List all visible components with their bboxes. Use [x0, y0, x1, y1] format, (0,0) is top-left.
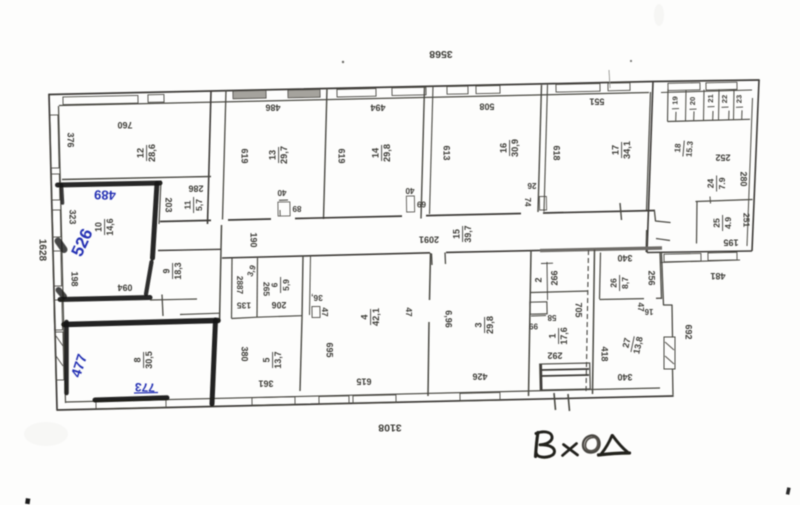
- svg-text:340: 340: [617, 253, 632, 263]
- svg-text:695: 695: [325, 342, 335, 357]
- svg-text:2887: 2887: [235, 276, 244, 295]
- svg-text:135: 135: [237, 301, 252, 311]
- svg-text:11: 11: [182, 200, 192, 209]
- svg-text:340: 340: [617, 372, 632, 382]
- svg-text:23: 23: [735, 95, 744, 103]
- svg-text:47: 47: [320, 307, 330, 317]
- svg-text:1: 1: [547, 333, 557, 338]
- svg-text:692: 692: [684, 324, 694, 339]
- svg-text:47: 47: [636, 302, 645, 312]
- svg-text:190: 190: [249, 232, 259, 247]
- svg-text:9: 9: [161, 268, 171, 273]
- svg-text:26: 26: [608, 278, 618, 288]
- svg-text:494: 494: [370, 103, 385, 113]
- svg-text:380: 380: [240, 346, 250, 361]
- svg-text:426: 426: [472, 372, 487, 382]
- svg-text:15: 15: [451, 229, 461, 239]
- svg-text:10: 10: [93, 222, 103, 232]
- svg-text:280: 280: [739, 171, 749, 186]
- svg-text:5,7: 5,7: [194, 199, 204, 211]
- svg-text:34,1: 34,1: [622, 141, 632, 159]
- svg-text:206: 206: [272, 300, 287, 310]
- svg-text:265: 265: [262, 282, 272, 297]
- svg-text:69: 69: [417, 199, 427, 208]
- svg-text:7.9: 7.9: [717, 177, 727, 189]
- svg-text:89: 89: [292, 204, 302, 213]
- svg-text:5,9: 5,9: [281, 279, 291, 291]
- svg-text:286: 286: [188, 184, 203, 194]
- svg-text:292: 292: [547, 351, 562, 361]
- svg-text:4: 4: [359, 314, 369, 320]
- svg-text:481: 481: [710, 271, 725, 281]
- svg-text:20: 20: [688, 97, 697, 105]
- svg-text:47: 47: [404, 307, 414, 317]
- svg-text:13,7: 13,7: [273, 351, 283, 368]
- svg-text:266: 266: [549, 270, 559, 285]
- svg-text:252: 252: [715, 153, 730, 163]
- svg-text:6,96: 6,96: [444, 310, 454, 328]
- svg-text:2: 2: [533, 277, 543, 282]
- svg-text:4.9: 4.9: [723, 217, 733, 229]
- svg-text:619: 619: [240, 148, 250, 163]
- svg-text:8: 8: [132, 357, 142, 362]
- svg-text:36,: 36,: [311, 293, 323, 303]
- svg-text:42,1: 42,1: [371, 308, 381, 326]
- svg-text:13: 13: [267, 150, 277, 160]
- svg-text:22: 22: [720, 95, 729, 103]
- svg-text:418: 418: [600, 346, 610, 361]
- svg-text:705: 705: [574, 302, 584, 317]
- svg-text:094: 094: [118, 283, 133, 293]
- svg-text:17,6: 17,6: [559, 327, 569, 345]
- svg-text:551: 551: [589, 97, 604, 107]
- svg-text:21: 21: [706, 94, 715, 103]
- svg-text:361: 361: [258, 379, 273, 389]
- svg-text:14: 14: [370, 147, 380, 158]
- svg-text:376: 376: [66, 132, 76, 147]
- svg-text:613: 613: [442, 145, 452, 160]
- svg-text:17: 17: [610, 145, 620, 155]
- svg-text:5: 5: [261, 357, 271, 362]
- svg-text:14,6: 14,6: [105, 218, 115, 235]
- svg-text:39,7: 39,7: [463, 225, 473, 242]
- svg-text:74: 74: [523, 197, 532, 207]
- svg-text:18: 18: [673, 143, 683, 153]
- svg-text:28,6: 28,6: [147, 144, 157, 162]
- svg-text:58: 58: [547, 313, 556, 322]
- svg-text:40: 40: [405, 186, 415, 195]
- svg-text:29,8: 29,8: [382, 144, 392, 162]
- svg-text:16: 16: [498, 143, 508, 153]
- svg-text:508: 508: [479, 102, 494, 112]
- svg-text:27: 27: [621, 337, 633, 349]
- svg-text:30,9: 30,9: [510, 139, 520, 157]
- svg-text:29,7: 29,7: [279, 146, 289, 164]
- svg-text:323: 323: [68, 210, 78, 225]
- svg-text:15.3: 15.3: [684, 140, 694, 157]
- svg-text:3108: 3108: [378, 422, 402, 434]
- svg-text:18,3: 18,3: [173, 262, 183, 279]
- svg-text:615: 615: [356, 377, 371, 387]
- svg-text:489: 489: [94, 187, 116, 203]
- svg-text:29,8: 29,8: [485, 316, 495, 334]
- svg-text:195: 195: [723, 238, 738, 248]
- svg-text:256: 256: [647, 270, 657, 285]
- svg-text:99: 99: [529, 321, 538, 330]
- svg-text:203: 203: [164, 197, 174, 212]
- svg-text:3568: 3568: [429, 48, 453, 60]
- svg-text:26: 26: [527, 181, 537, 190]
- svg-text:1628: 1628: [36, 239, 47, 262]
- svg-text:3: 3: [473, 322, 483, 327]
- svg-text:618: 618: [552, 145, 562, 160]
- svg-text:24: 24: [705, 179, 715, 189]
- svg-text:251: 251: [742, 213, 752, 228]
- svg-text:198: 198: [70, 271, 80, 286]
- svg-text:619: 619: [337, 148, 347, 163]
- svg-text:40: 40: [277, 188, 287, 197]
- svg-text:2091: 2091: [419, 235, 439, 245]
- svg-text:25: 25: [711, 218, 721, 228]
- svg-text:30,5: 30,5: [144, 351, 154, 369]
- svg-text:486: 486: [265, 103, 280, 113]
- svg-text:12: 12: [135, 148, 145, 158]
- svg-text:19: 19: [671, 96, 680, 104]
- svg-text:16: 16: [644, 307, 653, 316]
- svg-text:8,7: 8,7: [620, 277, 630, 289]
- svg-text:760: 760: [117, 120, 132, 130]
